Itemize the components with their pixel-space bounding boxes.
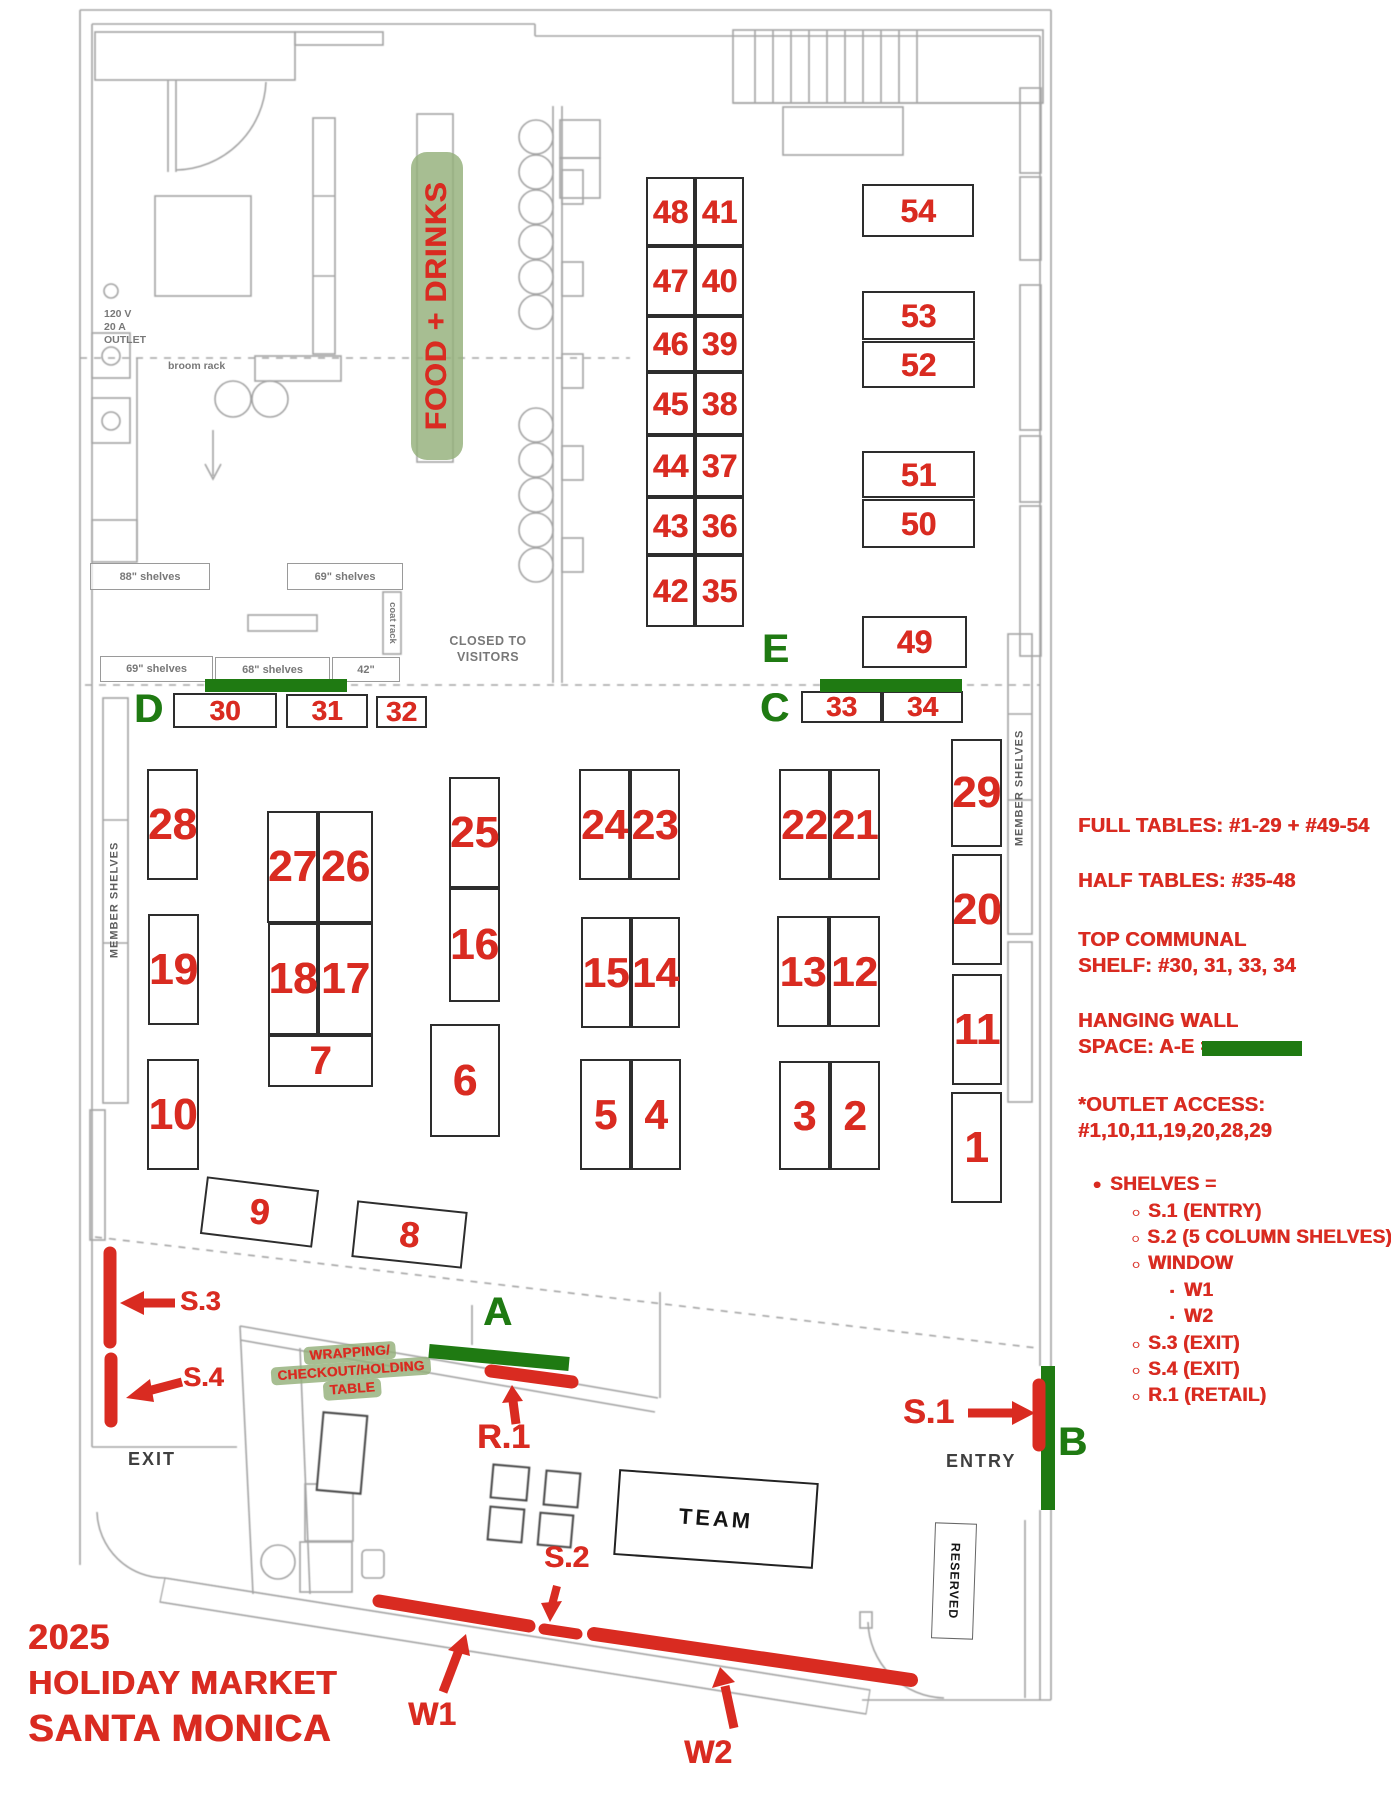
legend-bullet: ○ bbox=[1124, 1204, 1148, 1220]
shelf-s2-mark bbox=[544, 1629, 577, 1634]
legend-bullet: ○ bbox=[1124, 1388, 1148, 1404]
wall-space-letter-e: E bbox=[762, 629, 789, 669]
reserved-area: RESERVED bbox=[931, 1522, 977, 1639]
page-title: 2025 HOLIDAY MARKET SANTA MONICA bbox=[28, 1620, 337, 1748]
legend-bullet: ○ bbox=[1124, 1336, 1148, 1352]
legend-bullet: ○ bbox=[1124, 1362, 1148, 1378]
legend-item-s.4: ○S.4 (EXIT) bbox=[1080, 1357, 1391, 1383]
wall-space-letter-d: D bbox=[134, 689, 163, 729]
legend-item-s.1: ○S.1 (ENTRY) bbox=[1080, 1198, 1391, 1224]
legend-bullet: ▪ bbox=[1160, 1284, 1184, 1298]
s2-label: S.2 bbox=[544, 1543, 589, 1573]
s1-label: S.1 bbox=[903, 1395, 954, 1429]
entry-label: ENTRY bbox=[946, 1450, 1016, 1473]
legend-full-tables: FULL TABLES: #1-29 + #49-54 bbox=[1078, 816, 1369, 836]
s3-arrow bbox=[120, 1291, 175, 1315]
closed-to-visitors-label: CLOSED TOVISITORS bbox=[438, 634, 538, 665]
legend-shelves-header: •SHELVES = bbox=[1080, 1172, 1391, 1198]
legend-item-w1: ▪W1 bbox=[1080, 1278, 1391, 1304]
w2-label: W2 bbox=[684, 1736, 732, 1768]
legend-top-communal-2: SHELF: #30, 31, 33, 34 bbox=[1078, 956, 1296, 976]
exit-label: EXIT bbox=[128, 1448, 176, 1471]
team-table: TEAM bbox=[613, 1469, 819, 1569]
member-shelves-left-label: MEMBER SHELVES bbox=[100, 770, 130, 1030]
food-drinks-zone: FOOD + DRINKS bbox=[411, 152, 463, 460]
window-w1-line bbox=[379, 1601, 529, 1626]
hanging-wall-legend-swatch bbox=[1202, 1041, 1302, 1056]
legend-hanging-wall-2: SPACE: A-E = bbox=[1078, 1037, 1212, 1057]
s2-arrow bbox=[541, 1586, 562, 1622]
hanging-wall-bar-a bbox=[429, 1351, 569, 1364]
w1-arrow bbox=[443, 1634, 470, 1692]
legend-bullet: • bbox=[1084, 1172, 1110, 1198]
wall-space-letter-a: A bbox=[483, 1292, 512, 1332]
legend-bullet: ▪ bbox=[1160, 1310, 1184, 1324]
outlet-note: 120 V20 AOUTLET bbox=[104, 308, 146, 347]
team-label: TEAM bbox=[678, 1503, 754, 1534]
broom-rack-label: broom rack bbox=[168, 360, 225, 373]
s3-label: S.3 bbox=[180, 1288, 221, 1315]
legend-item-s.3: ○S.3 (EXIT) bbox=[1080, 1330, 1391, 1356]
legend-half-tables: HALF TABLES: #35-48 bbox=[1078, 871, 1296, 891]
legend-outlet-1: *OUTLET ACCESS: bbox=[1078, 1095, 1265, 1115]
coat-rack-label: coat rack bbox=[380, 594, 404, 652]
legend-bullet: ○ bbox=[1124, 1256, 1148, 1272]
s4-label: S.4 bbox=[183, 1364, 224, 1391]
legend-top-communal-1: TOP COMMUNAL bbox=[1078, 930, 1246, 950]
food-drinks-label: FOOD + DRINKS bbox=[420, 182, 454, 431]
legend-item-s.2: ○S.2 (5 COLUMN SHELVES) bbox=[1080, 1225, 1391, 1251]
legend-hanging-wall-1: HANGING WALL bbox=[1078, 1011, 1238, 1031]
s4-arrow bbox=[126, 1379, 182, 1402]
s1-arrow bbox=[968, 1401, 1035, 1425]
retail-r1-bar bbox=[491, 1371, 572, 1382]
legend-shelves-list: •SHELVES =○S.1 (ENTRY)○S.2 (5 COLUMN SHE… bbox=[1080, 1172, 1391, 1410]
reserved-label: RESERVED bbox=[946, 1543, 963, 1620]
w2-arrow bbox=[712, 1667, 735, 1728]
legend-outlet-2: #1,10,11,19,20,28,29 bbox=[1078, 1121, 1272, 1141]
legend-item-w2: ▪W2 bbox=[1080, 1304, 1391, 1330]
holiday-market-floor-plan: 2819102726181772516624231514542221131232… bbox=[0, 0, 1391, 1800]
member-shelves-right-label: MEMBER SHELVES bbox=[1005, 668, 1035, 908]
legend-item-window: ○WINDOW bbox=[1080, 1251, 1391, 1277]
w1-label: W1 bbox=[408, 1698, 456, 1730]
r1-label: R.1 bbox=[477, 1420, 530, 1454]
wall-space-letter-c: C bbox=[760, 688, 789, 728]
legend-bullet: ○ bbox=[1124, 1230, 1147, 1246]
wall-space-letter-b: B bbox=[1058, 1422, 1087, 1462]
window-w2-line bbox=[594, 1634, 911, 1680]
legend-item-r.1: ○R.1 (RETAIL) bbox=[1080, 1383, 1391, 1409]
